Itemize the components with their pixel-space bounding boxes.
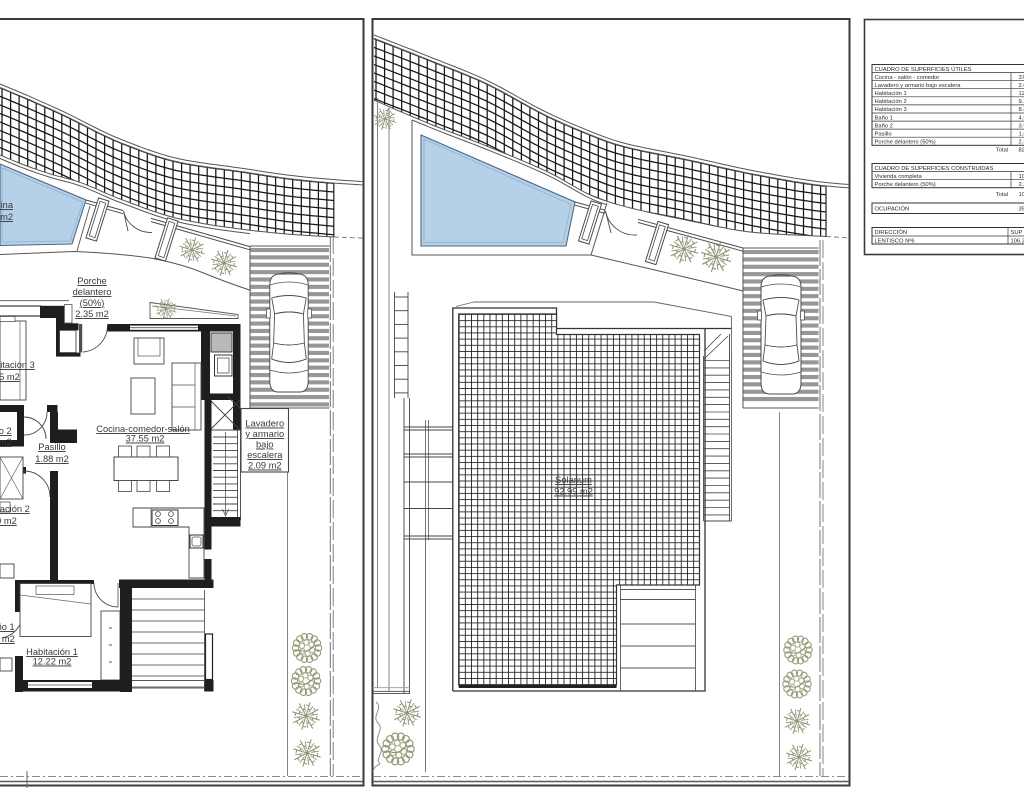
svg-text:106.28: 106.28: [1019, 192, 1024, 198]
svg-text:LENTISCO Nº6: LENTISCO Nº6: [875, 237, 915, 244]
svg-text:Cocina - salón - comedor: Cocina - salón - comedor: [875, 75, 940, 81]
svg-text:Total: Total: [996, 192, 1008, 198]
svg-text:Habitación 1: Habitación 1: [875, 91, 907, 97]
svg-text:2.35: 2.35: [1019, 140, 1024, 146]
svg-text:escalera: escalera: [247, 450, 283, 460]
svg-text:Pasillo: Pasillo: [875, 131, 892, 137]
svg-text:Habitación 1: Habitación 1: [26, 647, 78, 657]
svg-text:103.93: 103.93: [1019, 174, 1024, 180]
svg-text:OCUPACIÓN: OCUPACIÓN: [875, 206, 910, 213]
svg-text:Solarium: Solarium: [555, 475, 592, 485]
svg-text:8.85 m2: 8.85 m2: [0, 372, 20, 382]
svg-text:24 m2: 24 m2: [0, 212, 13, 222]
svg-text:Lavadero y armario bajo escale: Lavadero y armario bajo escalera: [875, 83, 962, 89]
svg-text:1.88: 1.88: [1019, 131, 1024, 137]
svg-text:y armario: y armario: [245, 429, 284, 439]
svg-text:3.95 m2: 3.95 m2: [0, 437, 12, 447]
svg-text:Porche: Porche: [77, 276, 106, 286]
svg-text:Total: Total: [996, 148, 1008, 154]
svg-text:Piscina: Piscina: [0, 200, 14, 210]
svg-text:(50%): (50%): [80, 298, 105, 308]
svg-text:Pasillo: Pasillo: [38, 442, 65, 452]
svg-text:Porche delantero (50%): Porche delantero (50%): [875, 182, 936, 188]
svg-text:35%: 35%: [1019, 207, 1024, 213]
svg-text:9.20 m2: 9.20 m2: [0, 516, 17, 526]
svg-text:Habitación 2: Habitación 2: [0, 504, 30, 514]
svg-text:92.99 m2: 92.99 m2: [554, 487, 593, 497]
svg-text:2.09: 2.09: [1019, 83, 1024, 89]
svg-text:CUADRO DE SUPERFICIES ÚTILES: CUADRO DE SUPERFICIES ÚTILES: [875, 66, 972, 73]
svg-text:CUADRO DE SUPERFICIES CONSTRUI: CUADRO DE SUPERFICIES CONSTRUIDAS: [875, 166, 994, 172]
svg-text:4.50: 4.50: [1019, 115, 1024, 121]
svg-text:37.55: 37.55: [1019, 75, 1024, 81]
svg-text:Baño 2: Baño 2: [0, 426, 12, 436]
svg-text:delantero: delantero: [73, 287, 112, 297]
svg-text:bajo: bajo: [256, 440, 274, 450]
svg-text:Habitación 3: Habitación 3: [0, 360, 35, 370]
svg-text:8.85: 8.85: [1019, 107, 1024, 113]
svg-text:DIRECCIÓN: DIRECCIÓN: [875, 229, 908, 236]
svg-text:106.28: 106.28: [1011, 238, 1024, 244]
svg-text:2.09 m2: 2.09 m2: [248, 461, 282, 471]
svg-text:Cocina-comedor-salón: Cocina-comedor-salón: [96, 424, 190, 434]
svg-text:2.35: 2.35: [1019, 182, 1024, 188]
svg-text:Baño 1: Baño 1: [875, 115, 893, 121]
svg-text:82.59: 82.59: [1019, 148, 1024, 154]
svg-text:Baño 1: Baño 1: [0, 622, 15, 632]
svg-text:12.22: 12.22: [1019, 91, 1024, 97]
svg-text:Lavadero: Lavadero: [245, 419, 284, 429]
svg-text:37.55 m2: 37.55 m2: [126, 434, 165, 444]
svg-text:2.35 m2: 2.35 m2: [75, 309, 109, 319]
svg-text:9.20: 9.20: [1019, 99, 1024, 105]
svg-text:Baño 2: Baño 2: [875, 123, 893, 129]
svg-text:SUP: SUP: [1011, 230, 1023, 236]
svg-text:Vivienda completa: Vivienda completa: [875, 174, 923, 180]
svg-text:1.88 m2: 1.88 m2: [35, 454, 69, 464]
svg-text:3.95: 3.95: [1019, 123, 1024, 129]
svg-text:4.50 m2: 4.50 m2: [0, 634, 15, 644]
svg-text:Porche delantero (50%): Porche delantero (50%): [875, 140, 936, 146]
svg-text:Habitación 3: Habitación 3: [875, 107, 907, 113]
svg-text:Habitación 2: Habitación 2: [875, 99, 907, 105]
svg-text:12.22 m2: 12.22 m2: [33, 657, 72, 667]
